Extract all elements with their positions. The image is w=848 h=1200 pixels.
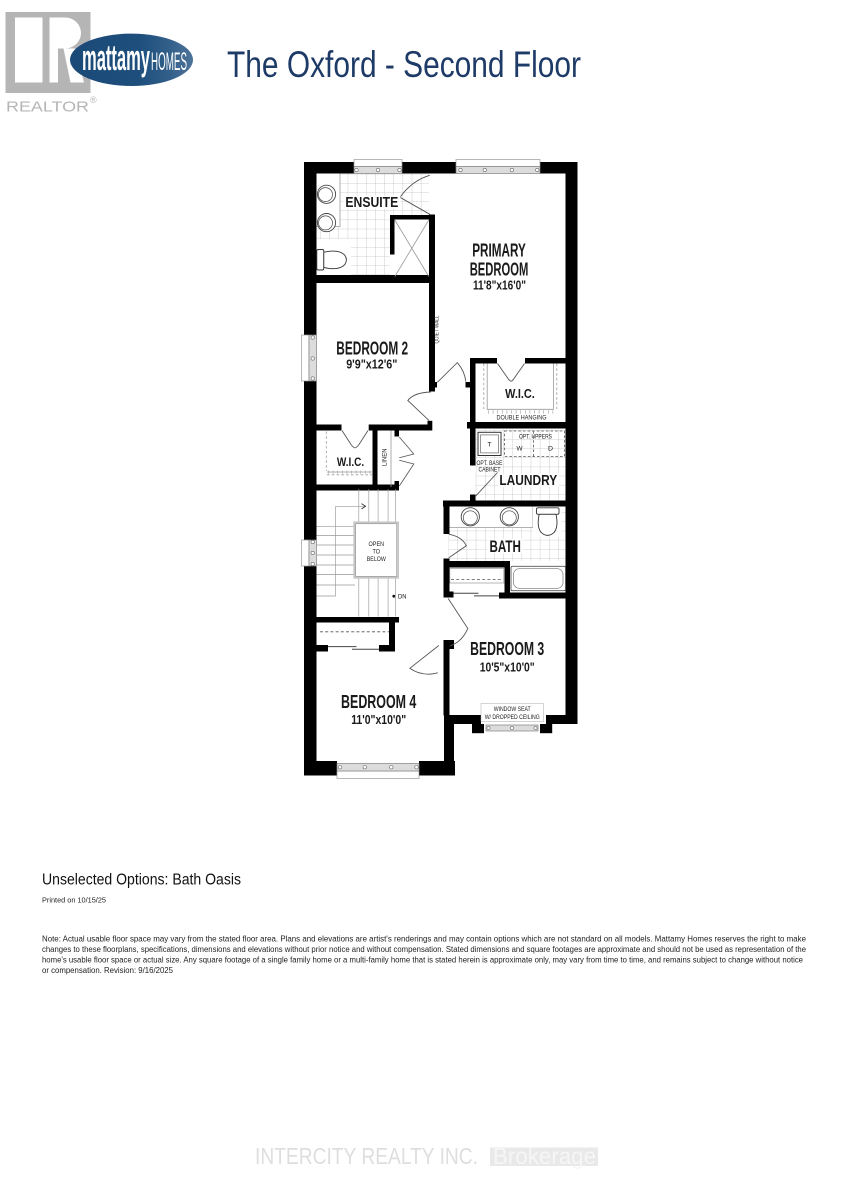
svg-text:W.I.C.: W.I.C. bbox=[337, 455, 364, 469]
svg-text:REALTOR: REALTOR bbox=[6, 99, 89, 116]
svg-text:The Oxford - Second Floor: The Oxford - Second Floor bbox=[227, 44, 581, 85]
svg-text:BEDROOM: BEDROOM bbox=[470, 259, 529, 279]
svg-text:changes to these floorplans, s: changes to these floorplans, specificati… bbox=[42, 945, 806, 954]
svg-text:®: ® bbox=[90, 95, 97, 105]
svg-text:DOUBLE HANGING: DOUBLE HANGING bbox=[497, 415, 547, 422]
svg-text:BEDROOM 2: BEDROOM 2 bbox=[336, 338, 408, 358]
svg-text:ENSUITE: ENSUITE bbox=[345, 194, 398, 211]
svg-text:DN: DN bbox=[398, 595, 407, 601]
svg-text:OPT. UPPERS: OPT. UPPERS bbox=[519, 434, 552, 441]
svg-text:mattamy: mattamy bbox=[82, 37, 150, 78]
svg-text:10'5"x10'0": 10'5"x10'0" bbox=[480, 661, 535, 675]
svg-text:BEDROOM 3: BEDROOM 3 bbox=[470, 639, 544, 659]
svg-text:D: D bbox=[548, 446, 553, 453]
svg-text:Brokerage: Brokerage bbox=[493, 1143, 596, 1169]
svg-text:W.I.C.: W.I.C. bbox=[505, 386, 535, 401]
svg-text:home's usable floor space or a: home's usable floor space or actual size… bbox=[42, 956, 803, 965]
svg-text:QUIET WALL: QUIET WALL bbox=[435, 316, 441, 344]
svg-text:Unselected Options: Bath Oasis: Unselected Options: Bath Oasis bbox=[42, 872, 241, 889]
svg-text:HOMES: HOMES bbox=[151, 48, 187, 76]
svg-text:INTERCITY REALTY INC.: INTERCITY REALTY INC. bbox=[255, 1143, 478, 1169]
svg-text:LAUNDRY: LAUNDRY bbox=[499, 472, 557, 489]
svg-text:T: T bbox=[488, 441, 492, 448]
svg-text:Note: Actual usable floor spac: Note: Actual usable floor space may vary… bbox=[42, 935, 806, 944]
svg-text:LINEN: LINEN bbox=[382, 449, 389, 467]
svg-text:11'0"x10'0": 11'0"x10'0" bbox=[351, 713, 406, 727]
svg-text:or compensation. Revision: 9/1: or compensation. Revision: 9/16/2025 bbox=[42, 966, 174, 975]
svg-text:CABINET: CABINET bbox=[479, 467, 501, 474]
svg-text:W: W bbox=[517, 446, 524, 453]
svg-text:11'8"x16'0": 11'8"x16'0" bbox=[473, 277, 526, 292]
svg-text:BEDROOM 4: BEDROOM 4 bbox=[341, 692, 416, 712]
svg-text:9'9"x12'6": 9'9"x12'6" bbox=[346, 356, 397, 371]
svg-text:TO: TO bbox=[373, 549, 381, 556]
svg-text:WINDOW SEAT: WINDOW SEAT bbox=[494, 706, 531, 713]
svg-text:Printed on 10/15/25: Printed on 10/15/25 bbox=[42, 896, 106, 905]
svg-text:PRIMARY: PRIMARY bbox=[472, 240, 526, 260]
svg-text:BELOW: BELOW bbox=[367, 556, 386, 563]
svg-text:BATH: BATH bbox=[490, 537, 521, 556]
svg-text:OPEN: OPEN bbox=[369, 541, 385, 548]
svg-text:W/ DROPPED CEILING: W/ DROPPED CEILING bbox=[485, 714, 540, 721]
